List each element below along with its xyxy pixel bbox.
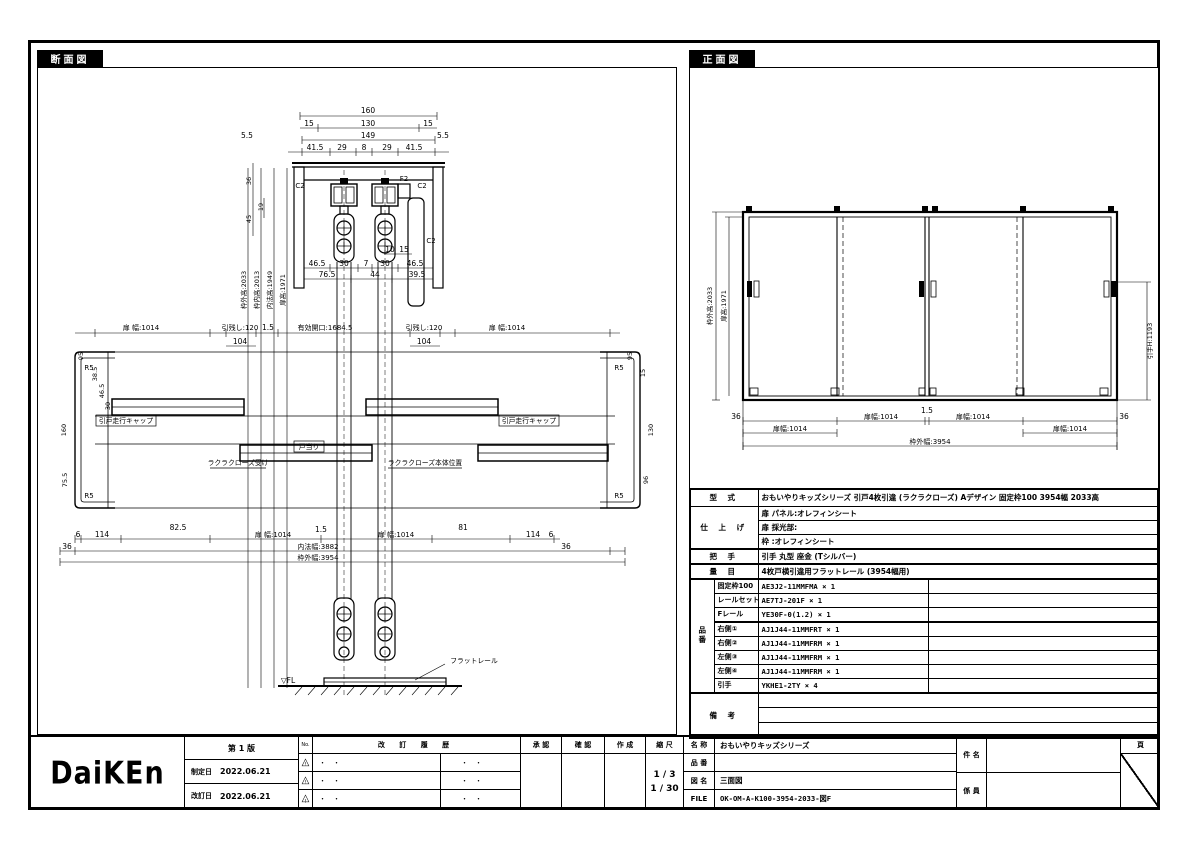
spec-parts-label: 品番 <box>690 579 714 693</box>
dim: 7 <box>364 259 369 268</box>
table-row: 備 考 <box>690 693 1158 708</box>
table-row: 右側① AJ1J44-11MMFRT × 1 <box>690 622 1158 637</box>
dim: 1.5 <box>315 525 327 534</box>
part-code: AJ1J44-11MMFRM × 1 <box>758 650 928 664</box>
revision-desc-placeholder: ・ ・ <box>441 794 482 804</box>
name-value: おもいやりキッズシリーズ <box>715 737 956 754</box>
file-label: FILE <box>684 790 714 808</box>
part-code: AJ1J44-11MMFRM × 1 <box>758 664 928 678</box>
revision-date-placeholder: ・ ・ <box>313 754 441 771</box>
part-extra <box>928 678 1158 693</box>
part-code: YKHE1-2TY × 4 <box>758 678 928 693</box>
daiken-logo-text: DaiKEn <box>50 755 164 791</box>
spec-finish-row: 枠 :オレフィンシート <box>758 534 1158 549</box>
dim: 39.5 <box>409 270 426 279</box>
revision-desc-placeholder: ・ ・ <box>441 758 482 768</box>
table-row: 品番 固定枠100 AE3J2-11MMFMA × 1 <box>690 579 1158 594</box>
part-value <box>715 754 956 772</box>
table-row: 型 式 おもいやりキッズシリーズ 引戸4枚引違 (ラクラクローズ) Aデザイン … <box>690 489 1158 506</box>
drawing-label: 図 名 <box>684 772 714 790</box>
scale-value-2: 1 / 30 <box>650 782 678 796</box>
front-view-title-label: 正面図 <box>703 51 742 66</box>
part-code: AJ1J44-11MMFRM × 1 <box>758 636 928 650</box>
dim: 76.5 <box>319 270 336 279</box>
spec-finish-row: 扉 パネル:オレフィンシート <box>758 506 1158 520</box>
scale-label: 縮 尺 <box>646 737 683 754</box>
spec-model-value: おもいやりキッズシリーズ 引戸4枚引違 (ラクラクローズ) Aデザイン 固定枠1… <box>758 489 1158 506</box>
dim: 30 <box>104 402 112 410</box>
dim: 36 <box>245 177 253 185</box>
dim: 104 <box>233 337 248 346</box>
dim: 36 <box>731 412 741 421</box>
dim: 引残し:120 <box>222 323 259 332</box>
dim: 扉 幅:1014 <box>378 530 415 539</box>
dim: 36 <box>1119 412 1129 421</box>
revision-history: 改 訂 履 歴 ・ ・ ・ ・ ・ ・ ・ ・ ・ ・ ・ ・ <box>312 737 520 809</box>
revision-warning-icon: △! <box>299 772 312 790</box>
revision-date-placeholder: ・ ・ <box>313 790 441 808</box>
page-cell <box>1121 754 1160 809</box>
dim: 5.5 <box>437 131 449 140</box>
part-extra <box>928 650 1158 664</box>
dim: 枠外幅:3954 <box>297 553 339 562</box>
dim: 36 <box>62 542 72 551</box>
sill-detail <box>278 598 462 695</box>
part-name: 右側① <box>714 622 758 637</box>
revised-row: 改訂日 2022.06.21 <box>185 784 298 808</box>
dim: 6 <box>549 530 554 539</box>
dim: 104 <box>417 337 432 346</box>
daiken-logo: DaiKEn <box>31 737 184 809</box>
create-cell <box>605 754 645 809</box>
part-name: レールセット <box>714 593 758 607</box>
dim: 引残し:120 <box>406 323 443 332</box>
revision-date-placeholder: ・ ・ <box>313 772 441 789</box>
dim: 扉 幅:1014 <box>489 323 526 332</box>
part-extra <box>928 636 1158 650</box>
check-cell <box>562 754 604 809</box>
dim: 29 <box>382 143 392 152</box>
scale-column: 縮 尺 1 / 3 1 / 30 <box>645 737 683 809</box>
dim: 95 <box>626 352 634 360</box>
dim: 82.5 <box>170 523 187 532</box>
dim: 枠外幅:3954 <box>909 437 951 446</box>
height-dimension-lines <box>248 168 287 688</box>
table-row: 枠 :オレフィンシート <box>690 534 1158 549</box>
section-view-drawing: 枠外高:2033 枠内高:2013 内法高:1949 扉高:1971 <box>28 75 682 735</box>
section-view-title-label: 断面図 <box>51 51 90 66</box>
part-name: 右側② <box>714 636 758 650</box>
subject-label-column: 件 名 係 員 <box>956 737 986 809</box>
revision-warning-icon: △! <box>299 790 312 808</box>
spec-remarks-label: 備 考 <box>690 693 758 738</box>
dim: 46.5 <box>407 259 424 268</box>
dim-height: 内法高:1949 <box>265 271 274 309</box>
chamfer-mark: C2 <box>295 182 304 190</box>
enacted-label: 制定日 <box>191 767 212 777</box>
no-label: No. <box>299 737 312 754</box>
part-name: 左側④ <box>714 664 758 678</box>
part-name: 左側③ <box>714 650 758 664</box>
revision-warning-icon: △! <box>299 754 312 772</box>
revision-no-column: No. △! △! △! <box>298 737 312 809</box>
dim: 29 <box>337 143 347 152</box>
dim: 8 <box>362 143 367 152</box>
revised-label: 改訂日 <box>191 791 212 801</box>
dim: 扉 幅:1014 <box>123 323 160 332</box>
front-view-title: 正面図 <box>689 50 755 67</box>
dim: 枠外高:2033 <box>705 287 714 325</box>
dim: 114 <box>95 530 110 539</box>
name-label-column: 名 称 品 番 図 名 FILE <box>683 737 714 809</box>
dim: 160 <box>60 424 68 436</box>
part-extra <box>928 607 1158 622</box>
table-row: Fレール YE30F-0(1.2) × 1 <box>690 607 1158 622</box>
plan-dim-labels: 扉 幅:1014 引残し:120 104 1.5 有効開口:1684.5 引残し… <box>60 323 655 562</box>
page-label: 頁 <box>1121 737 1160 754</box>
dim: 10 <box>385 245 395 254</box>
table-row: 引手 YKHE1-2TY × 4 <box>690 678 1158 693</box>
create-column: 作 成 <box>604 737 645 809</box>
edition-block: 第 1 版 制定日 2022.06.21 改訂日 2022.06.21 <box>184 737 298 809</box>
part-extra <box>928 593 1158 607</box>
dim: 扉幅:1014 <box>1053 424 1088 433</box>
part-code: AE3J2-11MMFMA × 1 <box>758 579 928 594</box>
approval-cell <box>521 754 561 809</box>
dim: 95 <box>77 352 85 360</box>
spec-qty-label: 量 目 <box>690 564 758 579</box>
part-name: Fレール <box>714 607 758 622</box>
subject-label: 件 名 <box>957 737 986 773</box>
scale-value-1: 1 / 3 <box>653 768 675 782</box>
door-section-lines <box>337 170 392 695</box>
revision-history-row: ・ ・ ・ ・ <box>313 772 520 790</box>
check-label: 確 認 <box>562 737 604 754</box>
dim: 扉幅:1014 <box>773 424 808 433</box>
enacted-row: 制定日 2022.06.21 <box>185 760 298 784</box>
height-dimension-labels: 枠外高:2033 枠内高:2013 内法高:1949 扉高:1971 <box>239 271 287 309</box>
spec-handle-label: 把 手 <box>690 549 758 564</box>
dim-height: 枠外高:2033 <box>239 271 248 309</box>
dim: 45 <box>245 215 253 223</box>
dim: 15 <box>399 245 409 254</box>
dim: 15 <box>304 119 314 128</box>
dim: 15 <box>423 119 433 128</box>
dim: 160 <box>361 106 376 115</box>
dim: 149 <box>361 131 376 140</box>
dim: 5.5 <box>241 131 253 140</box>
callout-label: 戸当り <box>299 442 319 451</box>
name-label: 名 称 <box>684 737 714 754</box>
part-code: AE7TJ-201F × 1 <box>758 593 928 607</box>
spec-finish-row: 扉 採光部: <box>758 520 1158 534</box>
scale-values: 1 / 3 1 / 30 <box>646 754 683 809</box>
part-extra <box>928 664 1158 678</box>
spec-finish-label: 仕 上 げ <box>690 506 758 549</box>
subject-value <box>987 737 1120 773</box>
callout-label: 引戸走行キャップ <box>502 416 557 425</box>
table-row <box>690 708 1158 723</box>
table-row: 扉 採光部: <box>690 520 1158 534</box>
revision-desc-placeholder: ・ ・ <box>441 776 482 786</box>
dim: 15 <box>639 369 647 377</box>
dim: 扉高:1971 <box>719 290 728 322</box>
drawing-sheet: 断面図 正面図 枠外高:2033 枠内高:2013 内法高:1949 扉高:19… <box>0 0 1191 842</box>
radius-mark: R5 <box>614 492 623 500</box>
radius-mark: R5 <box>614 364 623 372</box>
radius-mark: R5 <box>84 492 93 500</box>
dim-height: 枠内高:2013 <box>252 271 261 309</box>
dim: 扉幅:1014 <box>956 412 991 421</box>
approval-label: 承 認 <box>521 737 561 754</box>
dim: 19 <box>257 203 265 211</box>
door-handles <box>747 281 1116 297</box>
dim: 36 <box>561 542 571 551</box>
staff-label: 係 員 <box>957 773 986 808</box>
table-row: レールセット AE7TJ-201F × 1 <box>690 593 1158 607</box>
dim: 有効開口:1684.5 <box>298 323 353 332</box>
enacted-date: 2022.06.21 <box>220 767 271 776</box>
dim: 96 <box>642 476 650 484</box>
sill-labels: フラットレール ▽FL <box>281 657 498 685</box>
staff-value <box>987 773 1120 808</box>
revision-history-row: ・ ・ ・ ・ <box>313 790 520 808</box>
dim: 扉幅:1014 <box>864 412 899 421</box>
dim: 46.5 <box>309 259 326 268</box>
table-row: 左側③ AJ1J44-11MMFRM × 1 <box>690 650 1158 664</box>
part-extra <box>928 579 1158 594</box>
spec-model-label: 型 式 <box>690 489 758 506</box>
dim: 30 <box>380 259 390 268</box>
dim: 30 <box>339 259 349 268</box>
edition-label: 第 1 版 <box>185 737 298 760</box>
revision-history-label: 改 訂 履 歴 <box>313 737 520 754</box>
dim-height: 扉高:1971 <box>278 274 287 306</box>
title-block: DaiKEn 第 1 版 制定日 2022.06.21 改訂日 2022.06.… <box>31 735 1160 809</box>
dim: 130 <box>361 119 376 128</box>
floor-level-mark: ▽FL <box>281 676 296 685</box>
table-row: 量 目 4枚戸横引違用フラットレール (3954幅用) <box>690 564 1158 579</box>
part-extra <box>928 622 1158 637</box>
dim: 114 <box>526 530 541 539</box>
table-row: 右側② AJ1J44-11MMFRM × 1 <box>690 636 1158 650</box>
create-label: 作 成 <box>605 737 645 754</box>
revision-history-row: ・ ・ ・ ・ <box>313 754 520 772</box>
remarks-row <box>758 708 1158 723</box>
spec-qty-value: 4枚戸横引違用フラットレール (3954幅用) <box>758 564 1158 579</box>
file-value: OK-OM-A-K100-3954-2033-図F <box>715 790 956 808</box>
callout-label: 引戸走行キャップ <box>99 416 154 425</box>
drawing-value: 三面図 <box>715 772 956 790</box>
name-value-column: おもいやりキッズシリーズ 三面図 OK-OM-A-K100-3954-2033-… <box>714 737 956 809</box>
section-view-title: 断面図 <box>37 50 103 67</box>
table-row: 仕 上 げ 扉 パネル:オレフィンシート <box>690 506 1158 520</box>
spec-table: 型 式 おもいやりキッズシリーズ 引戸4枚引違 (ラクラクローズ) Aデザイン … <box>689 488 1159 739</box>
dim: 1.5 <box>921 406 933 415</box>
revised-date: 2022.06.21 <box>220 792 271 801</box>
dim: 75.5 <box>61 473 69 487</box>
dim: 6 <box>76 530 81 539</box>
chamfer-mark: C2 <box>417 182 426 190</box>
flat-rail-callout: フラットレール <box>450 657 498 665</box>
callout-label: ラクラクローズ受け <box>208 458 269 467</box>
dim: 81 <box>458 523 468 532</box>
dim: 41.5 <box>406 143 423 152</box>
dim: 1.5 <box>262 323 274 332</box>
part-code: AJ1J44-11MMFRT × 1 <box>758 622 928 637</box>
page-column: 頁 <box>1120 737 1160 809</box>
dim: 扉 幅:1014 <box>255 530 292 539</box>
dim: 130 <box>647 424 655 436</box>
part-name: 固定枠100 <box>714 579 758 594</box>
approval-column: 承 認 <box>520 737 561 809</box>
subject-value-column <box>986 737 1120 809</box>
part-code: YE30F-0(1.2) × 1 <box>758 607 928 622</box>
part-name: 引手 <box>714 678 758 693</box>
dim: 44 <box>370 270 380 279</box>
spec-handle-value: 引手 丸型 座金 (Tシルバー) <box>758 549 1158 564</box>
dim: 内法幅:3882 <box>297 542 338 551</box>
callout-label: ラクラクローズ本体位置 <box>388 458 463 467</box>
part-label: 品 番 <box>684 754 714 772</box>
table-row: 把 手 引手 丸型 座金 (Tシルバー) <box>690 549 1158 564</box>
front-view-drawing: 枠外高:2033 扉高:1971 引手H:1193 36 扉幅:1014 1.5… <box>682 75 1161 485</box>
page-diagonal-line <box>1121 754 1160 809</box>
dim: 41.5 <box>307 143 324 152</box>
table-row: 左側④ AJ1J44-11MMFRM × 1 <box>690 664 1158 678</box>
remarks-row <box>758 693 1158 708</box>
dim: 38.5 <box>91 367 99 381</box>
dim: 46.5 <box>98 384 106 398</box>
f2-mark: F2 <box>400 175 408 183</box>
dim: 引手H:1193 <box>1145 323 1154 360</box>
check-column: 確 認 <box>561 737 604 809</box>
chamfer-mark: C2 <box>426 237 435 245</box>
